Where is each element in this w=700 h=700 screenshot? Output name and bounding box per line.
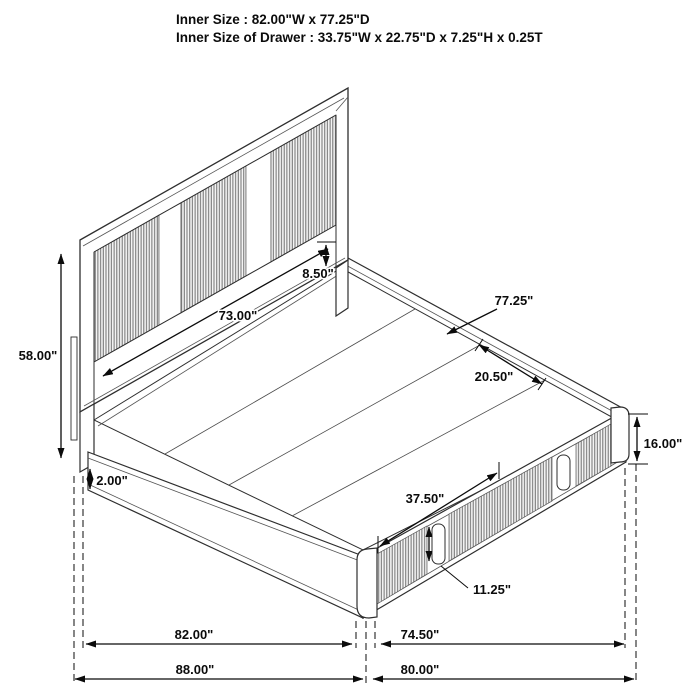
label-panel-gap: 8.50" <box>302 266 333 281</box>
headboard-leg-plate <box>71 337 77 440</box>
label-headboard-height: 58.00" <box>19 348 58 363</box>
drawer-handle <box>432 524 445 564</box>
foot-corner-post <box>357 548 377 618</box>
right-corner-post <box>611 407 629 463</box>
bed-dimension-diagram: Inner Size : 82.00"W x 77.25"D Inner Siz… <box>0 0 700 700</box>
headboard-right-leg <box>336 260 348 316</box>
label-rail-height: 16.00" <box>644 436 683 451</box>
dim-deck-depth <box>447 309 497 334</box>
label-deck-depth: 77.25" <box>495 293 534 308</box>
title-line-2: Inner Size of Drawer : 33.75"W x 22.75"D… <box>176 30 543 45</box>
label-handle-height: 11.25" <box>473 582 511 597</box>
label-width-inner: 82.00" <box>175 627 214 642</box>
label-leg-reveal: 2.00" <box>96 473 127 488</box>
label-depth-inner: 74.50" <box>401 627 440 642</box>
drawer-handle <box>557 455 570 490</box>
label-width-overall: 88.00" <box>176 662 215 677</box>
label-headboard-inner-width: 73.00" <box>219 308 258 323</box>
diagram-svg: Inner Size : 82.00"W x 77.25"D Inner Siz… <box>0 0 700 700</box>
label-plank-width: 20.50" <box>475 369 514 384</box>
title-line-1: Inner Size : 82.00"W x 77.25"D <box>176 12 370 27</box>
label-drawer-width: 37.50" <box>406 491 445 506</box>
label-depth-overall: 80.00" <box>401 662 440 677</box>
